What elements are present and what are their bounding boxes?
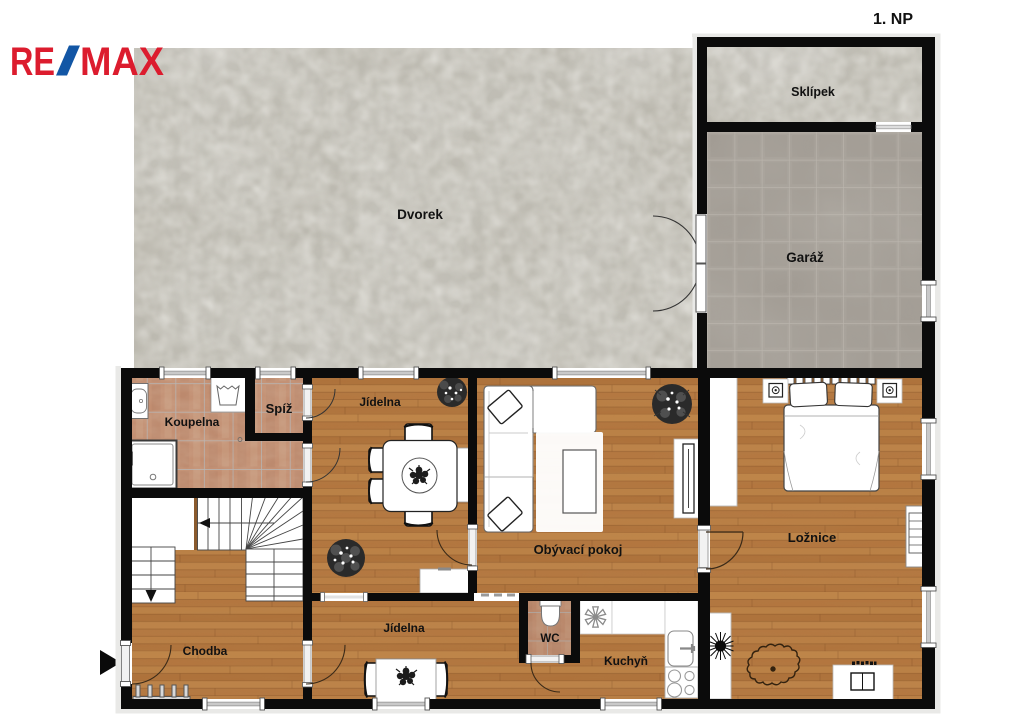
svg-text:Garáž: Garáž xyxy=(786,250,824,265)
svg-text:Jídelna: Jídelna xyxy=(359,395,401,409)
svg-text:RE: RE xyxy=(10,40,55,84)
svg-text:Sklípek: Sklípek xyxy=(791,85,835,99)
svg-text:MAX: MAX xyxy=(80,40,164,84)
svg-text:Obývací pokoj: Obývací pokoj xyxy=(534,542,623,557)
svg-text:Jídelna: Jídelna xyxy=(383,621,425,635)
svg-text:Dvorek: Dvorek xyxy=(397,207,443,222)
svg-text:Koupelna: Koupelna xyxy=(165,415,220,429)
svg-text:Chodba: Chodba xyxy=(183,644,228,658)
svg-text:Ložnice: Ložnice xyxy=(788,530,836,545)
svg-text:Kuchyň: Kuchyň xyxy=(604,654,648,668)
svg-text:Spíž: Spíž xyxy=(266,401,293,416)
svg-text:1. NP: 1. NP xyxy=(873,11,913,28)
svg-text:WC: WC xyxy=(540,633,559,645)
